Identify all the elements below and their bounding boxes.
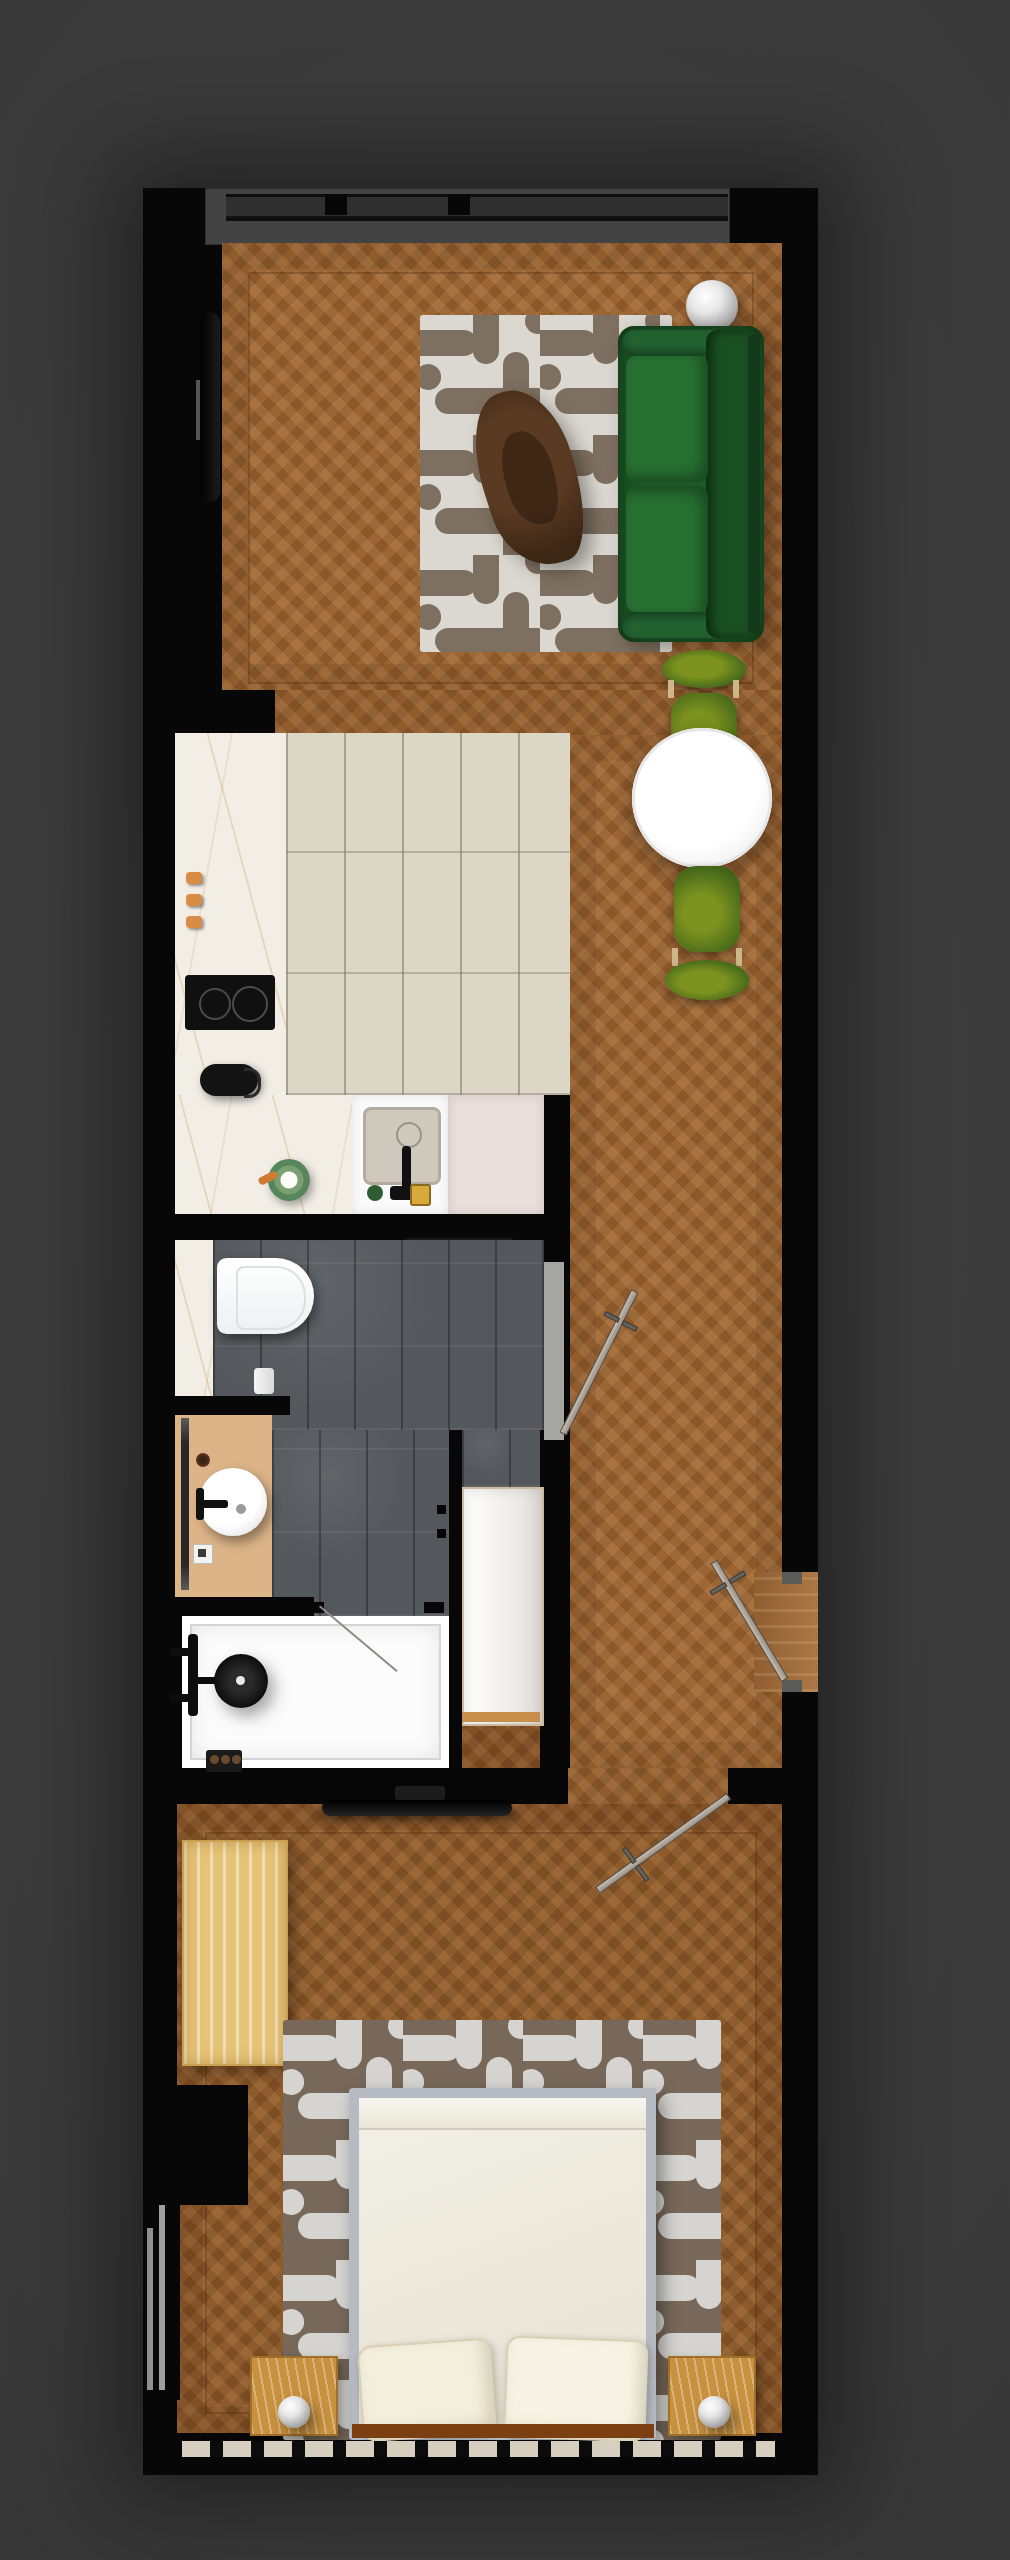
living-sphere-lamp — [686, 280, 738, 332]
kitchen-floor — [286, 733, 570, 1095]
window-pane-icon — [159, 2205, 165, 2390]
burner-icon — [232, 986, 268, 1022]
copper-hook-icon — [186, 872, 202, 884]
nightstand-sphere-lamp — [698, 2396, 730, 2428]
shower-jamb — [424, 1602, 444, 1613]
window-band-top — [226, 194, 728, 221]
sofa-seat-cushion — [626, 356, 708, 482]
sponge-icon — [410, 1184, 431, 1206]
soap-dish-icon — [196, 1453, 210, 1467]
copper-hook-icon — [186, 894, 202, 906]
window-mullion-icon — [325, 194, 347, 215]
bed-foot-rail — [352, 2424, 654, 2438]
tv-bracket-icon — [395, 1786, 445, 1800]
sofa-backrest — [706, 330, 748, 638]
door-hinge-icon — [437, 1505, 446, 1514]
closet-shelf-edge — [462, 1712, 540, 1722]
window-mullion-icon — [448, 194, 470, 215]
chair-rail-icon — [668, 680, 674, 698]
bed-sheet-fold — [359, 2098, 646, 2130]
kitchen-counter-left — [175, 733, 286, 1095]
sofa-seat-cushion — [626, 486, 708, 612]
nightstand-sphere-lamp — [278, 2396, 310, 2428]
caddy-pot-icon — [221, 1755, 230, 1764]
bedroom-wall-niche — [143, 2085, 248, 2205]
mirror-strip — [181, 1418, 189, 1590]
basin-drain-icon — [236, 1504, 246, 1514]
living-tv — [200, 312, 220, 502]
vanity-partition-wall — [175, 1597, 314, 1616]
shower-handle-icon — [170, 1694, 190, 1702]
shower-column — [188, 1634, 198, 1716]
copper-hook-icon — [186, 916, 202, 928]
toilet-seat-icon — [236, 1266, 306, 1330]
door-hinge-icon — [437, 1529, 446, 1538]
shower-handle-icon — [170, 1648, 190, 1656]
chair-rail-icon — [736, 948, 742, 966]
burner-icon — [199, 988, 231, 1020]
toilet-paper-icon — [254, 1368, 274, 1394]
closet-niche-floor — [462, 1430, 540, 1487]
green-bowl — [268, 1159, 310, 1201]
sofa — [618, 326, 764, 642]
bedroom-tv — [322, 1800, 512, 1816]
entry-threshold-cap — [782, 1680, 802, 1692]
entry-threshold-cap — [782, 1572, 802, 1584]
toilet-partition-wall — [175, 1396, 290, 1415]
dining-table — [632, 728, 772, 868]
sofa-back-edge — [748, 334, 760, 634]
kitchen-cabinet-blush — [448, 1095, 544, 1214]
tray-item-icon — [198, 1549, 206, 1557]
closet-nook-floor — [462, 1722, 540, 1768]
window-pane-icon — [147, 2228, 153, 2390]
chair-rail-icon — [733, 680, 739, 698]
bedroom-wardrobe — [182, 1840, 288, 2066]
shower-head-center-icon — [236, 1676, 245, 1685]
bottom-window-band — [182, 2441, 775, 2457]
chair-rail-icon — [672, 948, 678, 966]
dining-chair-seat — [674, 866, 740, 952]
bathroom-door-threshold — [544, 1262, 564, 1440]
vanity-faucet-riser — [196, 1488, 204, 1520]
kitchen-counter-bottom — [175, 1095, 352, 1214]
hall-closet — [462, 1487, 544, 1726]
floor-plan-canvas — [0, 0, 1010, 2560]
bedroom-doorway-floor — [568, 1768, 728, 1804]
soap-bar-icon — [367, 1185, 383, 1201]
bathroom-floor-lower — [272, 1430, 449, 1616]
bathroom-marble-strip — [175, 1240, 213, 1396]
sink-drain-icon — [396, 1122, 422, 1148]
caddy-pot-icon — [210, 1755, 219, 1764]
caddy-pot-icon — [232, 1755, 241, 1764]
dining-chair-backrest — [665, 960, 749, 1000]
